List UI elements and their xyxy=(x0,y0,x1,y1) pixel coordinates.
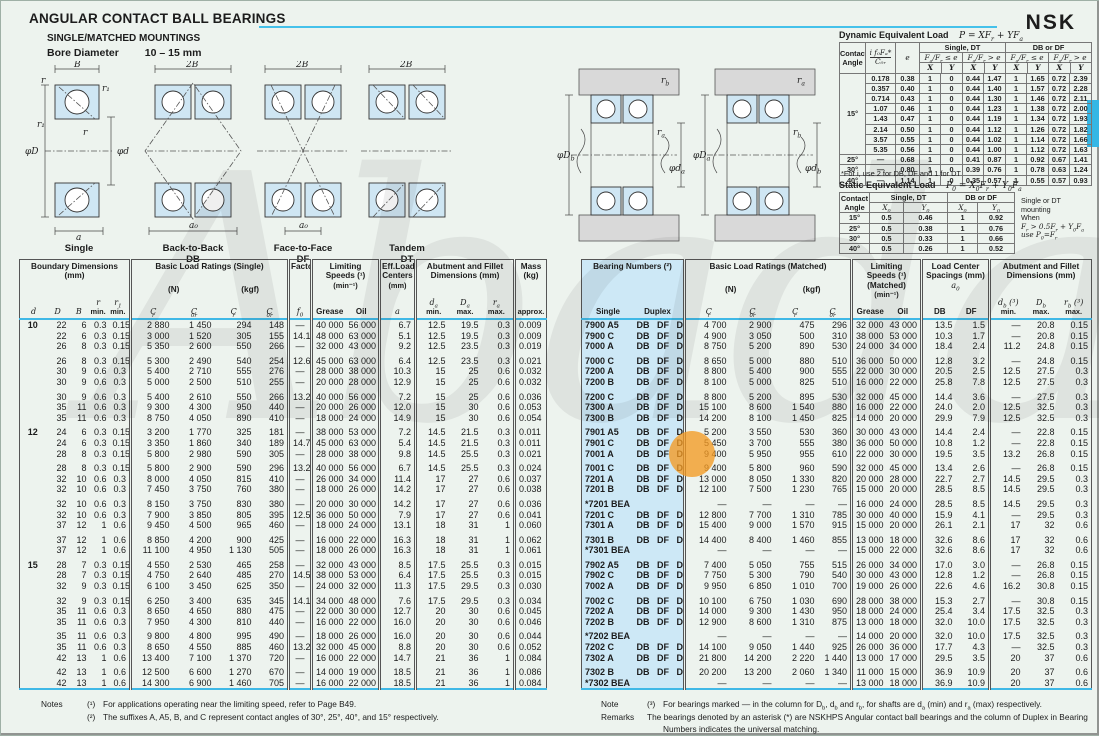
cell: 1 xyxy=(920,94,941,104)
cell: 32.5 xyxy=(1024,606,1058,617)
cell: 0.72 xyxy=(1049,114,1070,124)
cell: 0.3 xyxy=(110,484,131,495)
cell: 0.15 xyxy=(1058,356,1092,367)
cell: 1 xyxy=(920,83,941,93)
cell: 155 xyxy=(255,331,289,342)
cell: 0.6 xyxy=(90,510,110,521)
cell: 0.357 xyxy=(866,83,896,93)
load-ratings-header: Basic Load Ratings (Matched) (N)(kgf) Cr… xyxy=(685,260,852,320)
cell: 9.2 xyxy=(380,341,416,352)
cell: 19.5 xyxy=(449,319,482,331)
cell: 56 000 xyxy=(346,392,380,403)
cell: 4 550 xyxy=(131,560,173,571)
cell: 17.5 xyxy=(990,617,1024,628)
table-row: 2880.30.155 8002 980590305—28 00038 0009… xyxy=(20,449,547,460)
cell: — xyxy=(990,570,1024,581)
cell: 0 xyxy=(941,114,963,124)
cell: 1 xyxy=(90,653,110,664)
cell: 13.1 xyxy=(380,520,416,531)
bore-value: 10 – 15 mm xyxy=(145,47,202,59)
cell: 18 000 xyxy=(887,535,922,546)
cell: 0.5 xyxy=(870,223,904,233)
cell: 11 xyxy=(70,617,90,628)
cell xyxy=(20,596,46,607)
cell: 3 000 xyxy=(131,331,173,342)
cell: 0.6 xyxy=(90,606,110,617)
cell: 0.15 xyxy=(1058,463,1092,474)
cell: 20 xyxy=(990,678,1024,690)
cell: 37 xyxy=(1024,667,1058,678)
cell: 45 000 xyxy=(312,356,346,367)
cell: 0.6 xyxy=(1058,678,1092,690)
cell: 7 900 xyxy=(131,510,173,521)
cell: 890 xyxy=(215,413,255,424)
mounting-drawing-1: rb ra φDb φda xyxy=(557,59,689,251)
cell: 0.15 xyxy=(110,427,131,438)
cell: 32 xyxy=(46,596,70,607)
cell: 0.015 xyxy=(515,570,547,581)
cell: 38 000 xyxy=(887,596,922,607)
cell: 18 000 xyxy=(312,413,346,424)
cell: 1 xyxy=(948,223,978,233)
cell: 11 xyxy=(70,631,90,642)
cell: 26.8 xyxy=(1024,560,1058,571)
table-row: 7300 BDB DF DT14 2008 1001 45082514 0002… xyxy=(582,413,1092,424)
svg-text:r: r xyxy=(41,76,46,86)
cell: 1 130 xyxy=(215,545,255,556)
single-table-body: 102260.30.152 8801 450294148—40 00056 00… xyxy=(20,319,547,689)
cell: 0.6 xyxy=(482,366,515,377)
brand-logo: NSK xyxy=(1026,11,1076,35)
cell: 15 000 xyxy=(852,520,887,531)
cell: 20 000 xyxy=(312,499,346,510)
cell: 17 000 xyxy=(887,653,922,664)
cell: 8 600 xyxy=(730,617,775,628)
cell: 7302 A xyxy=(582,653,634,664)
contact-angle-header: ContactAngle xyxy=(840,43,866,74)
cell: — xyxy=(289,341,312,352)
cell: 32 xyxy=(46,581,70,592)
cell: 3 750 xyxy=(173,484,215,495)
cell: 7.2 xyxy=(380,427,416,438)
cell: — xyxy=(289,427,312,438)
cell: 32 xyxy=(46,510,70,521)
cell: 0.3 xyxy=(110,642,131,653)
cell: 825 xyxy=(775,377,818,388)
cell: 7.2 xyxy=(380,392,416,403)
cell: 1 xyxy=(920,155,941,165)
cell: 1.24 xyxy=(1070,165,1092,175)
table-row: 7901 A5DB DF DT5 2003 55053036030 00043 … xyxy=(582,427,1092,438)
cell: 30 000 xyxy=(887,449,922,460)
cell: 0.011 xyxy=(515,438,547,449)
cell: 1.66 xyxy=(1070,134,1092,144)
cell: 5 000 xyxy=(131,377,173,388)
cell: 48 000 xyxy=(346,596,380,607)
cell: 1 xyxy=(90,545,110,556)
cell: — xyxy=(990,427,1024,438)
cell: 6 100 xyxy=(131,581,173,592)
cell: 1 xyxy=(920,124,941,134)
cell: 0.3 xyxy=(482,438,515,449)
cell: 14 100 xyxy=(685,642,730,653)
cell: 0.15 xyxy=(110,463,131,474)
cell: 25.8 xyxy=(922,377,956,388)
cell: 20 000 xyxy=(312,402,346,413)
cell: 12 xyxy=(20,427,46,438)
cell: 830 xyxy=(215,499,255,510)
cell: 555 xyxy=(775,438,818,449)
cell: 700 xyxy=(818,581,852,592)
cell: 12.0 xyxy=(380,402,416,413)
table-row: 2.140.50100.441.1211.260.721.82 xyxy=(840,124,1092,134)
cell: 0.024 xyxy=(515,463,547,474)
abutment-header: Abutment and FilletDimensions (mm) damin… xyxy=(416,260,515,320)
cell: 0.3 xyxy=(90,581,110,592)
cell: 1 440 xyxy=(775,642,818,653)
table-row: 32100.60.37 4503 750760380—18 00026 0001… xyxy=(20,484,547,495)
cell: 3.2 xyxy=(956,356,990,367)
cell: 2 220 xyxy=(775,653,818,664)
cell: 43 000 xyxy=(887,319,922,331)
cell: 0.3 xyxy=(1058,606,1092,617)
title-rule xyxy=(259,26,997,28)
note-line: RemarksThe bearings denoted by an asteri… xyxy=(601,711,1088,724)
cell: 16 000 xyxy=(312,617,346,628)
cell: 28 xyxy=(46,570,70,581)
cell: 8 xyxy=(70,463,90,474)
cell: 32 xyxy=(46,474,70,485)
cell: 3 450 xyxy=(173,581,215,592)
cell: 14.5 xyxy=(416,463,449,474)
cell: 22 000 xyxy=(312,606,346,617)
cell: 36 000 xyxy=(852,438,887,449)
cell: 18.5 xyxy=(380,667,416,678)
cell: 14 200 xyxy=(685,413,730,424)
cell: 18 000 xyxy=(887,617,922,628)
cell: — xyxy=(289,520,312,531)
cell: 32.5 xyxy=(1024,642,1058,653)
cell xyxy=(20,392,46,403)
cell: 8 100 xyxy=(730,413,775,424)
cell: 32 000 xyxy=(346,581,380,592)
cell: 35 xyxy=(46,606,70,617)
cell xyxy=(20,520,46,531)
cell: 12.5 xyxy=(416,331,449,342)
cell: 32 xyxy=(1024,535,1058,546)
cell: 15 100 xyxy=(685,402,730,413)
cell: 8 750 xyxy=(131,413,173,424)
cell: 12.6 xyxy=(289,356,312,367)
notes-left: Notes(¹)For applications operating near … xyxy=(41,698,439,723)
cell: 29.9 xyxy=(922,413,956,424)
cell: 40° xyxy=(840,244,870,254)
cell: 0 xyxy=(941,83,963,93)
cell: 7 450 xyxy=(131,484,173,495)
cell xyxy=(634,499,685,510)
cell: 20 xyxy=(416,606,449,617)
cell: 1 310 xyxy=(775,510,818,521)
cell: 2.4 xyxy=(956,341,990,352)
cell xyxy=(20,510,46,521)
cell: 0.6 xyxy=(482,499,515,510)
cell: 460 xyxy=(255,642,289,653)
cell: DB DF DT xyxy=(634,653,685,664)
cell: 0.3 xyxy=(90,570,110,581)
cell: 0.6 xyxy=(482,377,515,388)
cell: DB DF DT xyxy=(634,413,685,424)
cell: 0.3 xyxy=(1058,413,1092,424)
table-row: 7902 CDB DF DT7 7505 30079054030 00043 0… xyxy=(582,570,1092,581)
cell: 31 xyxy=(449,535,482,546)
cell: — xyxy=(289,560,312,571)
cell: 20 xyxy=(416,642,449,653)
cell: 1 230 xyxy=(775,484,818,495)
bore-diameter: Bore Diameter10 – 15 mm xyxy=(47,47,201,59)
cell: 9 xyxy=(70,366,90,377)
cell: 5 800 xyxy=(131,449,173,460)
cell: 26.8 xyxy=(1024,463,1058,474)
cell: — xyxy=(289,377,312,388)
cell: 28 000 xyxy=(852,596,887,607)
cell: 0.78 xyxy=(1027,165,1049,175)
cell: 5 800 xyxy=(730,463,775,474)
cell: 5.1 xyxy=(380,331,416,342)
cell: 2 500 xyxy=(173,377,215,388)
cell: 1 xyxy=(482,667,515,678)
cell xyxy=(20,377,46,388)
table-row: 3290.30.156 2503 40063534514.134 00048 0… xyxy=(20,596,547,607)
cell: 0.3 xyxy=(90,331,110,342)
cell xyxy=(20,667,46,678)
cell: 490 xyxy=(255,631,289,642)
dynamic-load-footnote: *For i, use 2 for DB, DF and 1 for DT xyxy=(841,169,961,178)
cell: 24 000 xyxy=(852,341,887,352)
cell xyxy=(20,356,46,367)
cell: 0.44 xyxy=(963,134,984,144)
cell: *7202 BEA xyxy=(582,631,634,642)
cell: 22 000 xyxy=(852,449,887,460)
cell: 1 xyxy=(1006,94,1027,104)
cell: 14.4 xyxy=(922,392,956,403)
cell: 790 xyxy=(775,570,818,581)
cell: 3.5 xyxy=(956,653,990,664)
cell: 0.15 xyxy=(1058,331,1092,342)
table-row: 2680.30.155 3502 600550266—32 00043 0009… xyxy=(20,341,547,352)
cell: 25.5 xyxy=(449,560,482,571)
cell: 30 000 xyxy=(346,499,380,510)
cell: 0.15 xyxy=(110,581,131,592)
table-row: 7002 CDB DF DT10 1006 7501 03069028 0003… xyxy=(582,596,1092,607)
cell: 530 xyxy=(818,341,852,352)
cell: — xyxy=(775,545,818,556)
cell: 345 xyxy=(255,596,289,607)
cell: 63 000 xyxy=(346,331,380,342)
cell: 32 xyxy=(1024,520,1058,531)
cell: 15 000 xyxy=(887,667,922,678)
cell: 12.7 xyxy=(380,606,416,617)
cell: 30.8 xyxy=(1024,596,1058,607)
cell: DB DF DT xyxy=(634,484,685,495)
cell: 26.8 xyxy=(1024,449,1058,460)
cell: 0 xyxy=(941,124,963,134)
cell: 34 000 xyxy=(887,560,922,571)
cell: 7900 C xyxy=(582,331,634,342)
cell: 8 xyxy=(70,449,90,460)
load-ratings-header: Basic Load Ratings (Single) (N)(kgf) CrC… xyxy=(131,260,289,320)
cell: 0.33 xyxy=(904,233,948,243)
cell: 875 xyxy=(818,617,852,628)
cell: 8 850 xyxy=(131,535,173,546)
cell: 189 xyxy=(255,438,289,449)
cell: 12.5 xyxy=(990,413,1024,424)
cell: 0.50 xyxy=(896,124,920,134)
cell: 7002 A xyxy=(582,581,634,592)
cell: — xyxy=(990,463,1024,474)
cell: 2 980 xyxy=(173,449,215,460)
cell: 995 xyxy=(215,631,255,642)
cell: 26.8 xyxy=(1024,570,1058,581)
cell: 1.63 xyxy=(1070,145,1092,155)
cell: 29.5 xyxy=(449,581,482,592)
cell: 0.3 xyxy=(482,463,515,474)
cell: 27.5 xyxy=(1024,366,1058,377)
table-row: *7301 BEA————15 00022 00032.68.617320.6 xyxy=(582,545,1092,556)
cell: 2.4 xyxy=(956,427,990,438)
cell: 20 000 xyxy=(887,484,922,495)
table-row: 371210.69 4504 500965460—18 00024 00013.… xyxy=(20,520,547,531)
cell: 885 xyxy=(215,642,255,653)
cell: 0.44 xyxy=(963,124,984,134)
cell: 42 xyxy=(46,667,70,678)
cell: 0.037 xyxy=(515,474,547,485)
cell: 34 000 xyxy=(312,596,346,607)
cell: 820 xyxy=(818,474,852,485)
cell: 1.65 xyxy=(1027,73,1049,83)
cell: 1.46 xyxy=(1027,94,1049,104)
cell: 0.062 xyxy=(515,535,547,546)
cell: — xyxy=(775,678,818,690)
cell: 16 000 xyxy=(852,499,887,510)
cell: 0.47 xyxy=(896,114,920,124)
cell: 18 000 xyxy=(312,520,346,531)
cell: 0.3 xyxy=(482,331,515,342)
cell: 1 370 xyxy=(215,653,255,664)
cell: 26.1 xyxy=(922,520,956,531)
cell: 0.3 xyxy=(1058,402,1092,413)
matched-table-header: Bearing Numbers (²) SingleDuplex Basic L… xyxy=(582,260,1092,320)
cell: 0.3 xyxy=(482,581,515,592)
table-row: 7000 ADB DF DT8 7505 20089053024 00034 0… xyxy=(582,341,1092,352)
cell: 360 xyxy=(818,427,852,438)
cell: *7201 BEA xyxy=(582,499,634,510)
cell: 0.38 xyxy=(896,73,920,83)
cell: 30 xyxy=(449,606,482,617)
cell: 0 xyxy=(941,73,963,83)
svg-text:φdb: φdb xyxy=(805,164,821,176)
cell: 11 xyxy=(70,413,90,424)
cell: 10.3 xyxy=(922,331,956,342)
load-center-spacings-header: Load CenterSpacings (mm)a0 DBDF xyxy=(922,260,990,320)
cell: 0.3 xyxy=(110,413,131,424)
cell: 0.15 xyxy=(1058,427,1092,438)
cell: 0.72 xyxy=(1049,104,1070,114)
cell: 26 000 xyxy=(346,402,380,413)
cell: 8 xyxy=(70,341,90,352)
table-row: 7201 ADB DF DT13 0008 0501 33082020 0002… xyxy=(582,474,1092,485)
cell: 1 340 xyxy=(818,667,852,678)
cell: 1.30 xyxy=(984,94,1006,104)
cell: 0.44 xyxy=(963,83,984,93)
cell: 11 xyxy=(70,402,90,413)
cell: DB DF DT xyxy=(634,319,685,331)
cell: 510 xyxy=(818,356,852,367)
abutment-header: Abutment and FilletDimensions (mm) db (³… xyxy=(990,260,1092,320)
dynamic-load-header: ContactAngle i f₀Fₐ*C₀ᵣ e Single, DT Fa/… xyxy=(840,43,1092,74)
cell: 2 610 xyxy=(173,392,215,403)
cell: 0.6 xyxy=(110,545,131,556)
table-row: 3090.60.35 0002 500510255—20 00028 00012… xyxy=(20,377,547,388)
cell: 555 xyxy=(215,366,255,377)
cell: 9 xyxy=(70,596,90,607)
cell: 21.5 xyxy=(449,427,482,438)
cell: 9.8 xyxy=(380,449,416,460)
cell: 30 000 xyxy=(887,366,922,377)
cell: 5 950 xyxy=(730,449,775,460)
cell: 5 200 xyxy=(730,392,775,403)
cell xyxy=(634,631,685,642)
cell: 2.28 xyxy=(1070,83,1092,93)
cell: — xyxy=(990,560,1024,571)
cell: 7201 C xyxy=(582,510,634,521)
cell: 5 200 xyxy=(730,341,775,352)
cell: 30 xyxy=(449,617,482,628)
table-row: 3090.60.35 4002 710555276—28 00038 00010… xyxy=(20,366,547,377)
svg-text:2B: 2B xyxy=(399,61,413,70)
db-bearing-drawing: 2B a₀ xyxy=(137,61,249,241)
cell: 7302 B xyxy=(582,667,634,678)
cell: 15 000 xyxy=(852,545,887,556)
dynamic-load-table: ContactAngle i f₀Fₐ*C₀ᵣ e Single, DT Fa/… xyxy=(839,42,1092,186)
cell: 425 xyxy=(255,535,289,546)
cell: 8.5 xyxy=(956,499,990,510)
cell: 13.2 xyxy=(289,463,312,474)
table-row: 30°0.50.3310.66 xyxy=(840,233,1015,243)
cell: 10.8 xyxy=(922,438,956,449)
cell: 20 000 xyxy=(887,520,922,531)
cell: 305 xyxy=(255,449,289,460)
cell: 37 xyxy=(46,520,70,531)
cell xyxy=(20,402,46,413)
cell: — xyxy=(730,631,775,642)
cell: 5 000 xyxy=(730,377,775,388)
cell: 465 xyxy=(215,560,255,571)
cell: 26 000 xyxy=(346,484,380,495)
cell: 15 xyxy=(416,413,449,424)
svg-text:2B: 2B xyxy=(295,61,309,70)
cell: 590 xyxy=(215,463,255,474)
cell: 12.5 xyxy=(990,377,1024,388)
cell: 13.2 xyxy=(289,642,312,653)
cell: 7902 A5 xyxy=(582,560,634,571)
cell: 28.5 xyxy=(922,484,956,495)
cell: 53 000 xyxy=(346,427,380,438)
cell: 38 000 xyxy=(346,366,380,377)
cell: 0.3 xyxy=(1058,510,1092,521)
mounting-drawing-2: ra rb φDa φdb xyxy=(693,59,825,251)
cell: 325 xyxy=(215,427,255,438)
cell: 0.52 xyxy=(978,244,1015,254)
